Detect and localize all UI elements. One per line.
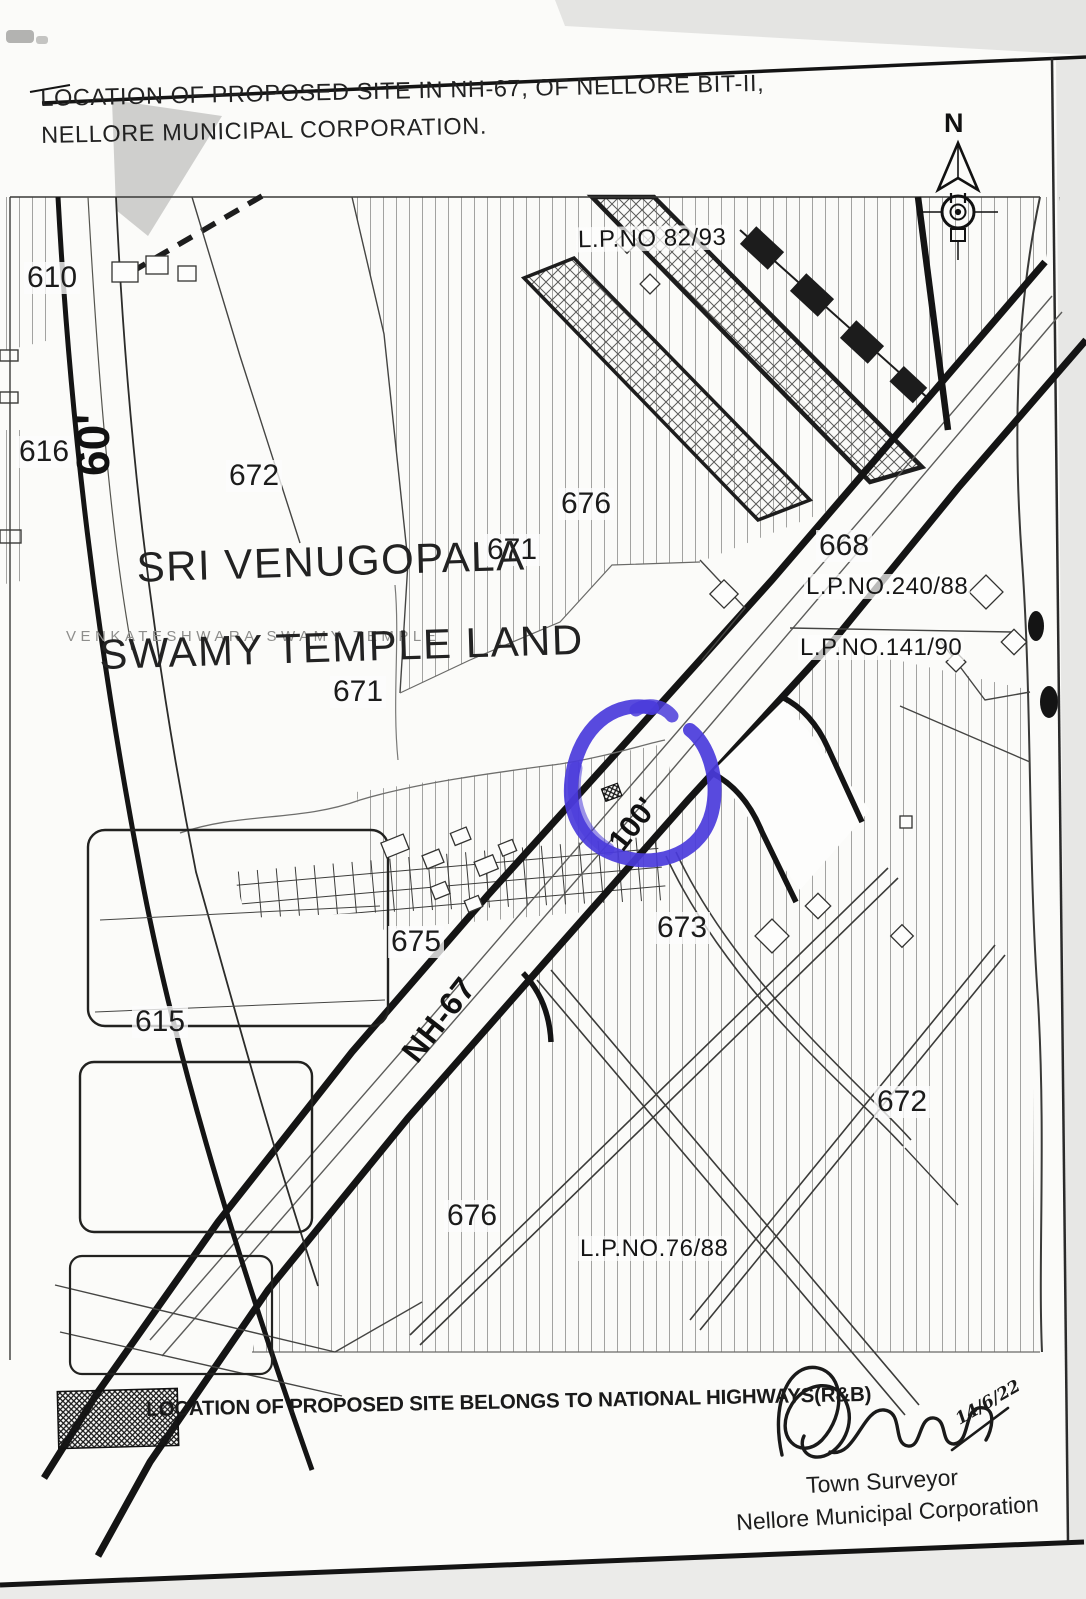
plot-label-668: 668 [816, 530, 872, 562]
lp-label-76-88: L.P.NO.76/88 [578, 1236, 730, 1261]
plot-label-672a: 672 [226, 460, 282, 492]
map-canvas [0, 0, 1086, 1599]
plot-label-673: 673 [654, 912, 710, 944]
map-title: LOCATION OF PROPOSED SITE IN NH-67, OF N… [40, 65, 765, 154]
lp-label-82-93: L.P.NO 82/93 [576, 225, 729, 253]
plot-label-610: 610 [24, 262, 80, 294]
plot-label-615: 615 [132, 1006, 188, 1038]
north-label: N [944, 108, 964, 139]
plot-label-616: 616 [16, 436, 72, 468]
plot-label-672b: 672 [874, 1086, 930, 1118]
scanned-map-page: LOCATION OF PROPOSED SITE IN NH-67, OF N… [0, 0, 1086, 1599]
plot-label-676b: 676 [444, 1200, 500, 1232]
road-label-60ft: 60' [70, 414, 116, 476]
lp-label-240-88: L.P.NO.240/88 [804, 574, 970, 599]
plot-label-675: 675 [388, 926, 444, 958]
plot-label-676a: 676 [558, 488, 614, 520]
plot-label-671b: 671 [330, 676, 386, 708]
temple-land-label: SRI VENUGOPALA SWAMY TEMPLE LAND [96, 533, 584, 676]
lp-label-141-90: L.P.NO.141/90 [798, 635, 964, 660]
temple-land-line1: SRI VENUGOPALA [136, 533, 582, 589]
